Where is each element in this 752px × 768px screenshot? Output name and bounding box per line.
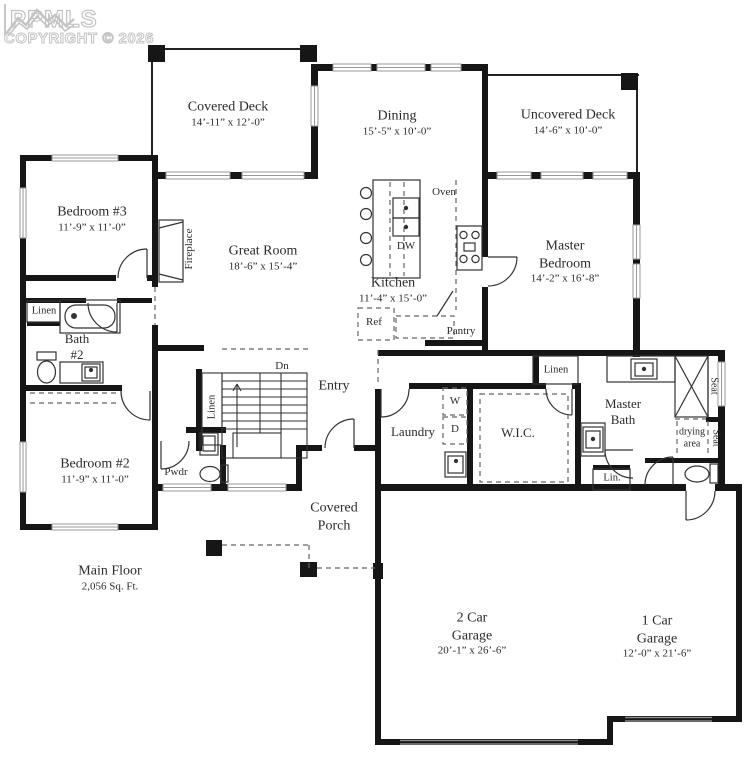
room-label-kitchen: Kitchen 11’-4” x 15’-0” — [359, 274, 427, 305]
kitchen-fixtures — [361, 180, 483, 278]
oven-label: Oven — [432, 186, 456, 198]
seat-label-shower: Seat — [709, 377, 720, 394]
shower — [675, 356, 708, 417]
front-door — [325, 419, 354, 448]
bar-stools — [361, 188, 372, 266]
bedroom2-door — [121, 391, 150, 420]
linen-label-bath2: Linen — [32, 306, 57, 317]
room-label-master-bath: Master Bath — [597, 396, 649, 429]
room-label-covered-porch: Covered Porch — [303, 500, 365, 535]
stairs-dn-label: Dn — [275, 360, 288, 372]
room-label-wic: W.I.C. — [501, 425, 535, 441]
room-label-laundry: Laundry — [391, 424, 435, 440]
room-label-entry: Entry — [318, 377, 349, 395]
room-label-great-room: Great Room 18’-6” x 15’-4” — [229, 242, 298, 273]
main-floor-label: Main Floor 2,056 Sq. Ft. — [78, 562, 141, 593]
range-cooktop — [457, 226, 482, 270]
master-bedroom-door — [488, 257, 517, 286]
garage-entry-door — [686, 491, 715, 520]
room-label-covered-deck: Covered Deck 14’-11” x 12’-0” — [188, 98, 268, 129]
refrigerator-label: Ref — [366, 316, 382, 328]
seat-label-drying: Seat — [711, 429, 722, 446]
linen-label-stairs: Linen — [207, 395, 218, 420]
stair-direction-arrow — [233, 384, 241, 447]
wic-door — [546, 389, 572, 415]
fireplace-box — [159, 220, 183, 282]
mountains-logo-icon — [4, 4, 76, 38]
powder-sink — [200, 433, 218, 455]
washer-label: W — [450, 395, 460, 407]
laundry-door — [381, 389, 409, 417]
vanity-sink — [60, 362, 103, 383]
room-label-dining: Dining 15’-5” x 10’-0” — [363, 107, 431, 138]
room-label-bedroom3: Bedroom #3 11’-9” x 11’-0” — [57, 203, 127, 234]
lin-label: Lin. — [603, 473, 620, 484]
dryer-label: D — [451, 423, 459, 435]
drying-area-label: drying area — [673, 427, 711, 450]
room-label-bath2: Bath #2 — [59, 331, 95, 364]
dishwasher-label: DW — [397, 240, 415, 252]
master-vanity-top — [607, 356, 675, 382]
powder-label: Pwdr — [164, 466, 187, 478]
room-label-uncovered-deck: Uncovered Deck 14’-6” x 10’-0” — [521, 106, 615, 137]
room-label-2-car-garage: 2 Car Garage 20’-1” x 26’-6” — [438, 610, 506, 659]
island-sink — [393, 198, 419, 236]
bathtub — [60, 300, 120, 333]
garage-door-lines — [400, 718, 712, 745]
room-label-bedroom2: Bedroom #2 11’-9” x 11’-0” — [60, 455, 130, 486]
toilet — [37, 352, 56, 383]
kitchen-island — [373, 180, 420, 278]
dashed-lines — [30, 180, 708, 568]
room-label-1-car-garage: 1 Car Garage 12’-0” x 21’-6” — [623, 613, 691, 662]
laundry-sink — [445, 452, 466, 477]
room-label-master-bedroom: Master Bedroom 14’-2” x 16’-8” — [526, 238, 604, 287]
bedroom3-door — [118, 249, 147, 278]
floor-plan: PPMLS COPYRIGHT © 2026 Covered Deck 14’-… — [0, 0, 752, 768]
linen-label-master: Linen — [544, 365, 569, 376]
pantry-door — [437, 291, 453, 316]
pantry-label: Pantry — [447, 325, 476, 337]
powder-door — [161, 441, 189, 469]
fireplace-label: Fireplace — [183, 229, 195, 270]
watermark: PPMLS COPYRIGHT © 2026 — [4, 4, 154, 47]
master-toilet — [685, 464, 718, 483]
